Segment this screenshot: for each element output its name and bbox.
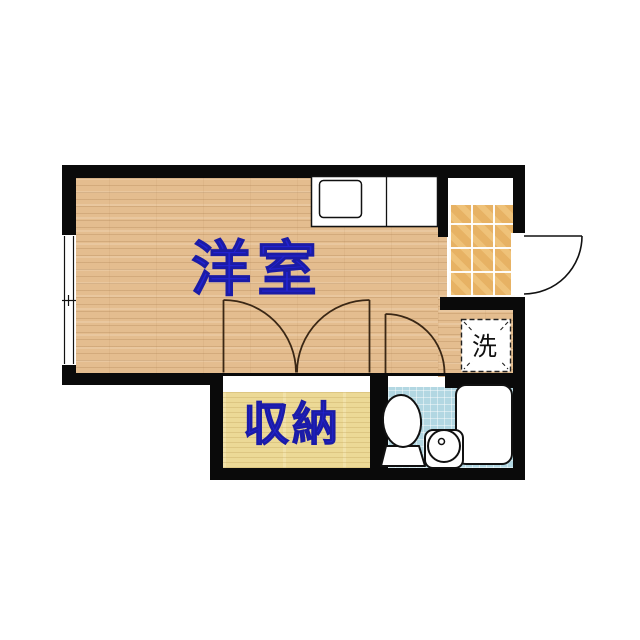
closet-double-doors-icon <box>224 300 370 373</box>
entry-door-swing <box>524 236 582 294</box>
western-room-label: 洋室 <box>191 240 323 300</box>
fixtures-layer <box>0 0 640 640</box>
bathroom-door-icon <box>386 314 445 373</box>
kitchen-counter-icon <box>312 177 438 227</box>
bathtub-icon <box>456 385 512 464</box>
toilet-icon <box>381 393 425 466</box>
wash-basin-icon <box>425 430 463 468</box>
floor-plan: 洋室 収納 洗 <box>0 0 640 640</box>
laundry-label: 洗 <box>470 334 499 361</box>
entry-door-opening <box>511 233 525 295</box>
sliding-window-icon <box>62 236 76 364</box>
storage-label: 収納 <box>243 401 341 447</box>
